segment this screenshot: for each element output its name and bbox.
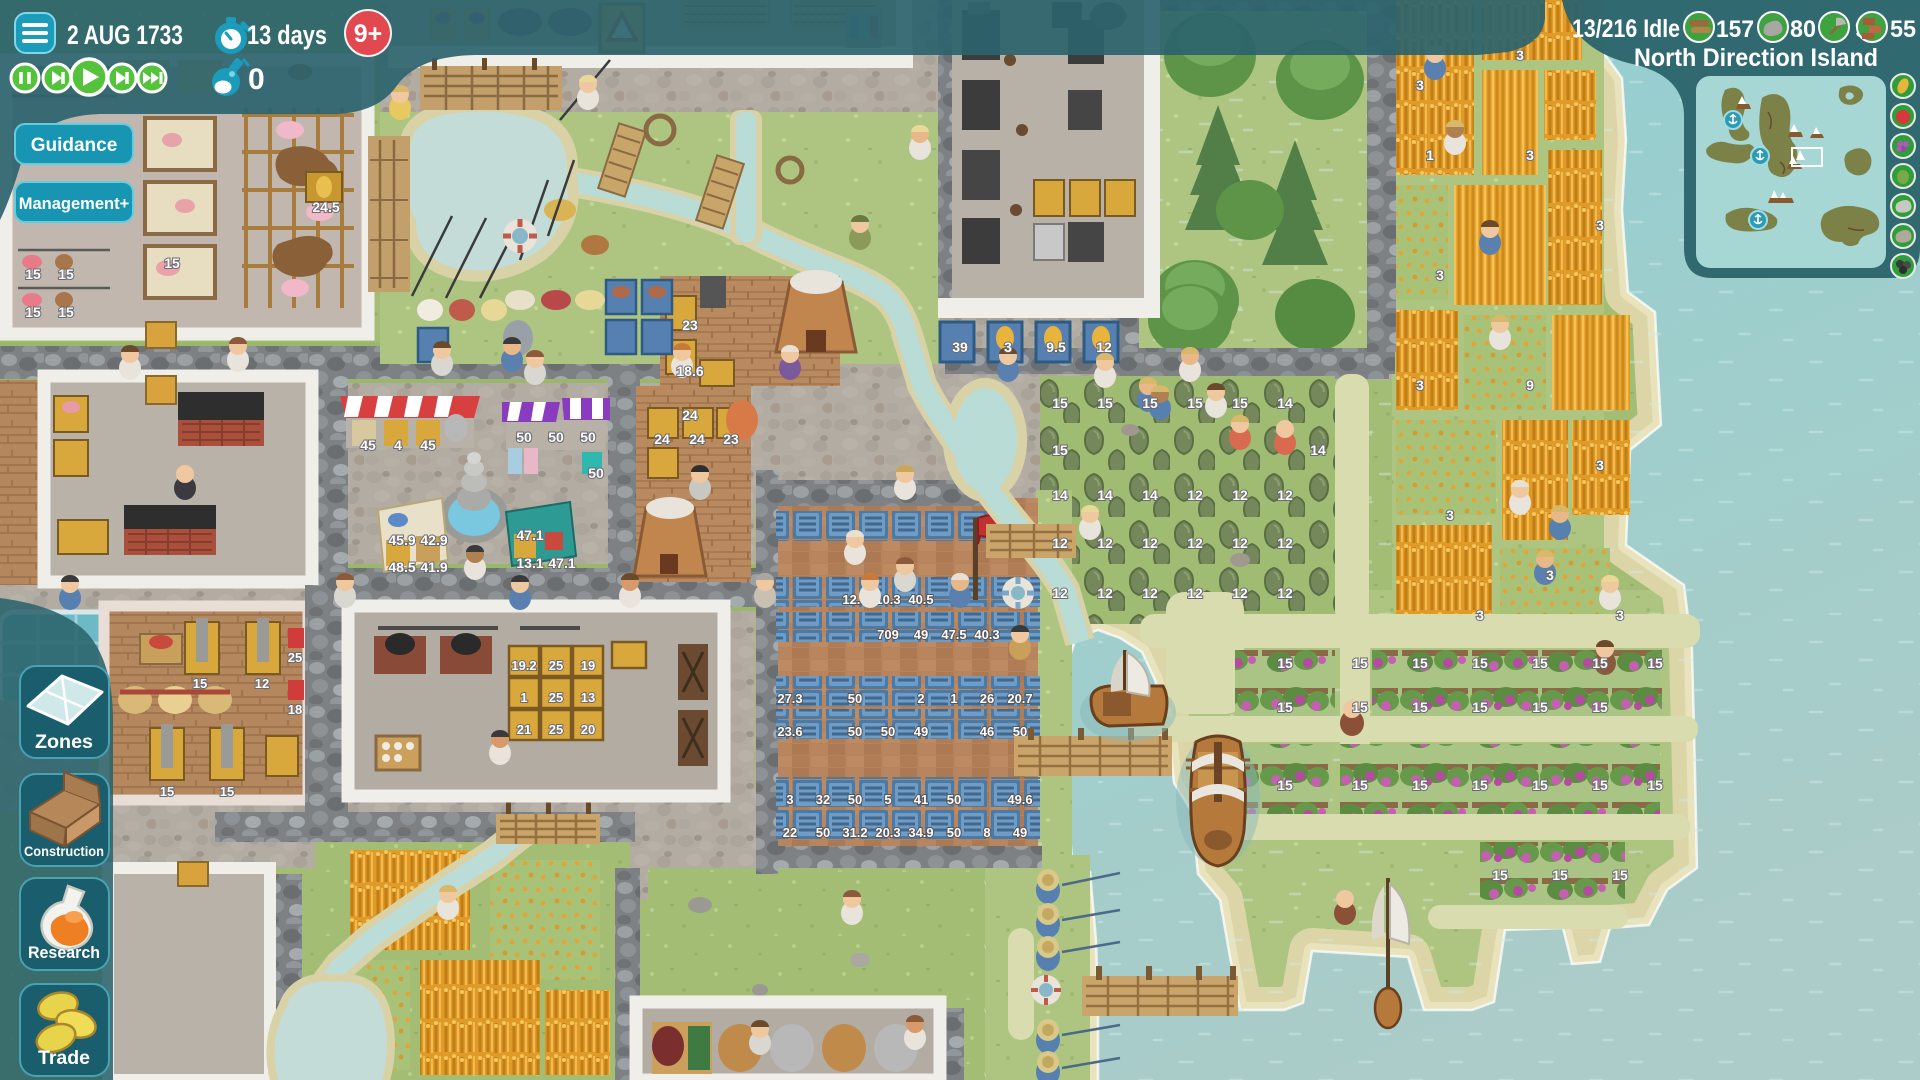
svg-text:15: 15	[25, 266, 41, 282]
svg-text:13: 13	[581, 690, 595, 705]
svg-text:15: 15	[1532, 777, 1548, 793]
svg-text:42.9: 42.9	[420, 532, 447, 548]
svg-text:9: 9	[1526, 377, 1534, 393]
svg-text:Guidance: Guidance	[31, 135, 118, 156]
svg-text:0: 0	[248, 63, 265, 96]
svg-text:15: 15	[1412, 699, 1428, 715]
svg-text:50: 50	[947, 825, 961, 840]
svg-text:20: 20	[581, 722, 595, 737]
svg-text:55: 55	[1890, 16, 1916, 43]
svg-text:47.5: 47.5	[941, 627, 966, 642]
svg-text:Construction: Construction	[24, 844, 104, 859]
svg-text:12: 12	[1052, 535, 1068, 551]
svg-text:23.6: 23.6	[777, 724, 802, 739]
svg-text:2: 2	[917, 691, 924, 706]
svg-text:12: 12	[1142, 585, 1158, 601]
svg-text:15: 15	[1097, 395, 1113, 411]
svg-text:39: 39	[952, 339, 968, 355]
svg-text:5: 5	[884, 792, 891, 807]
svg-text:15: 15	[1352, 655, 1368, 671]
svg-text:12: 12	[1187, 487, 1203, 503]
svg-text:12: 12	[1232, 487, 1248, 503]
svg-text:18: 18	[288, 702, 302, 717]
svg-text:2 AUG 1733: 2 AUG 1733	[67, 20, 183, 50]
svg-text:34.9: 34.9	[908, 825, 933, 840]
svg-text:50: 50	[580, 429, 596, 445]
svg-text:32: 32	[816, 792, 830, 807]
svg-text:50: 50	[548, 429, 564, 445]
svg-text:3: 3	[1526, 147, 1534, 163]
svg-text:15: 15	[1277, 777, 1293, 793]
svg-text:20.7: 20.7	[1007, 691, 1032, 706]
svg-text:North Direction Island: North Direction Island	[1634, 44, 1878, 72]
svg-text:15: 15	[1352, 777, 1368, 793]
svg-text:157: 157	[1716, 16, 1754, 43]
svg-text:15: 15	[58, 266, 74, 282]
svg-text:12: 12	[1097, 585, 1113, 601]
svg-text:20.3: 20.3	[875, 825, 900, 840]
svg-text:25: 25	[549, 722, 563, 737]
svg-text:50: 50	[848, 792, 862, 807]
svg-text:12: 12	[1142, 535, 1158, 551]
svg-text:15: 15	[1532, 655, 1548, 671]
svg-text:14: 14	[1097, 487, 1113, 503]
svg-text:45: 45	[360, 437, 376, 453]
svg-text:23: 23	[682, 317, 698, 333]
svg-text:15: 15	[1052, 395, 1068, 411]
svg-text:3: 3	[1596, 457, 1604, 473]
svg-text:24: 24	[689, 431, 705, 447]
svg-text:3: 3	[1446, 507, 1454, 523]
svg-text:31.2: 31.2	[842, 825, 867, 840]
svg-text:15: 15	[1277, 655, 1293, 671]
svg-text:12: 12	[1277, 535, 1293, 551]
svg-text:Trade: Trade	[38, 1048, 90, 1069]
svg-text:15: 15	[58, 304, 74, 320]
svg-text:1: 1	[1426, 147, 1434, 163]
svg-text:15: 15	[1472, 655, 1488, 671]
svg-text:14: 14	[1277, 395, 1293, 411]
svg-text:Research: Research	[28, 943, 100, 962]
svg-text:1: 1	[520, 690, 527, 705]
svg-text:15: 15	[1492, 867, 1508, 883]
svg-text:15: 15	[1412, 777, 1428, 793]
svg-text:24.5: 24.5	[312, 199, 339, 215]
svg-text:13 days: 13 days	[247, 20, 327, 50]
svg-text:46: 46	[980, 724, 994, 739]
svg-text:15: 15	[220, 784, 234, 799]
svg-text:50: 50	[881, 724, 895, 739]
svg-text:15: 15	[1277, 699, 1293, 715]
svg-text:15: 15	[25, 304, 41, 320]
svg-text:9.5: 9.5	[1046, 339, 1066, 355]
svg-text:12: 12	[1097, 535, 1113, 551]
svg-text:25: 25	[549, 690, 563, 705]
svg-text:3: 3	[1416, 77, 1424, 93]
svg-text:15: 15	[1647, 655, 1663, 671]
svg-text:15: 15	[1472, 699, 1488, 715]
svg-text:24: 24	[654, 431, 670, 447]
svg-text:12: 12	[1232, 535, 1248, 551]
svg-text:50: 50	[588, 465, 604, 481]
svg-text:15: 15	[1187, 395, 1203, 411]
svg-text:48.5: 48.5	[388, 559, 415, 575]
svg-text:13/216 Idle: 13/216 Idle	[1572, 15, 1680, 43]
svg-text:15: 15	[1352, 699, 1368, 715]
svg-text:19: 19	[581, 658, 595, 673]
svg-text:9+: 9+	[354, 20, 383, 48]
svg-text:15: 15	[1612, 867, 1628, 883]
svg-text:13.1: 13.1	[516, 555, 543, 571]
svg-text:26: 26	[980, 691, 994, 706]
svg-text:12: 12	[1187, 535, 1203, 551]
svg-text:49.6: 49.6	[1007, 792, 1032, 807]
svg-text:15: 15	[1552, 867, 1568, 883]
svg-text:15: 15	[1412, 655, 1428, 671]
svg-text:12: 12	[1277, 487, 1293, 503]
svg-text:15: 15	[1647, 777, 1663, 793]
svg-text:50: 50	[516, 429, 532, 445]
svg-text:50: 50	[848, 691, 862, 706]
svg-text:50: 50	[848, 724, 862, 739]
svg-text:15: 15	[1592, 699, 1608, 715]
svg-text:14: 14	[1142, 487, 1158, 503]
svg-text:3: 3	[1546, 567, 1554, 583]
svg-text:22: 22	[783, 825, 797, 840]
svg-text:709: 709	[877, 627, 899, 642]
svg-text:15: 15	[1592, 655, 1608, 671]
svg-text:49: 49	[914, 724, 928, 739]
svg-text:25: 25	[549, 658, 563, 673]
svg-text:15: 15	[1052, 442, 1068, 458]
svg-text:15: 15	[1592, 777, 1608, 793]
svg-text:3: 3	[786, 792, 793, 807]
svg-text:15: 15	[160, 784, 174, 799]
svg-text:15: 15	[1472, 777, 1488, 793]
svg-text:1: 1	[950, 691, 957, 706]
svg-text:8: 8	[983, 825, 990, 840]
svg-text:21: 21	[517, 722, 531, 737]
svg-text:3: 3	[1596, 217, 1604, 233]
svg-text:12: 12	[1232, 585, 1248, 601]
svg-text:3: 3	[1004, 339, 1012, 355]
svg-text:40.5: 40.5	[908, 592, 933, 607]
svg-text:12: 12	[1096, 339, 1112, 355]
svg-text:47.1: 47.1	[548, 555, 575, 571]
svg-text:15: 15	[1532, 699, 1548, 715]
svg-text:49: 49	[1013, 825, 1027, 840]
svg-text:19.2: 19.2	[511, 658, 536, 673]
svg-text:15: 15	[164, 255, 180, 271]
svg-text:50: 50	[947, 792, 961, 807]
svg-text:24: 24	[682, 407, 698, 423]
svg-text:3: 3	[1516, 47, 1524, 63]
svg-text:41.9: 41.9	[420, 559, 447, 575]
svg-text:45.9: 45.9	[388, 532, 415, 548]
svg-text:Zones: Zones	[35, 732, 93, 753]
svg-text:4: 4	[394, 437, 402, 453]
svg-text:27.3: 27.3	[777, 691, 802, 706]
svg-text:12: 12	[1277, 585, 1293, 601]
svg-text:12: 12	[1187, 585, 1203, 601]
svg-text:3: 3	[1416, 377, 1424, 393]
svg-text:40.3: 40.3	[974, 627, 999, 642]
svg-text:45: 45	[420, 437, 436, 453]
svg-text:18.6: 18.6	[676, 363, 703, 379]
svg-text:23: 23	[723, 431, 739, 447]
svg-text:49: 49	[914, 627, 928, 642]
svg-text:15: 15	[193, 676, 207, 691]
svg-text:14: 14	[1052, 487, 1068, 503]
svg-text:12: 12	[1052, 585, 1068, 601]
svg-text:41: 41	[914, 792, 928, 807]
svg-text:25: 25	[288, 650, 302, 665]
svg-text:50: 50	[816, 825, 830, 840]
svg-text:80: 80	[1790, 16, 1816, 43]
svg-text:3: 3	[1436, 267, 1444, 283]
svg-text:Management+: Management+	[19, 195, 130, 213]
svg-text:14: 14	[1310, 442, 1326, 458]
svg-text:3: 3	[1616, 607, 1624, 623]
svg-text:12: 12	[255, 676, 269, 691]
svg-text:15: 15	[1142, 395, 1158, 411]
svg-text:47.1: 47.1	[516, 527, 543, 543]
svg-text:3: 3	[1476, 607, 1484, 623]
svg-text:15: 15	[1232, 395, 1248, 411]
